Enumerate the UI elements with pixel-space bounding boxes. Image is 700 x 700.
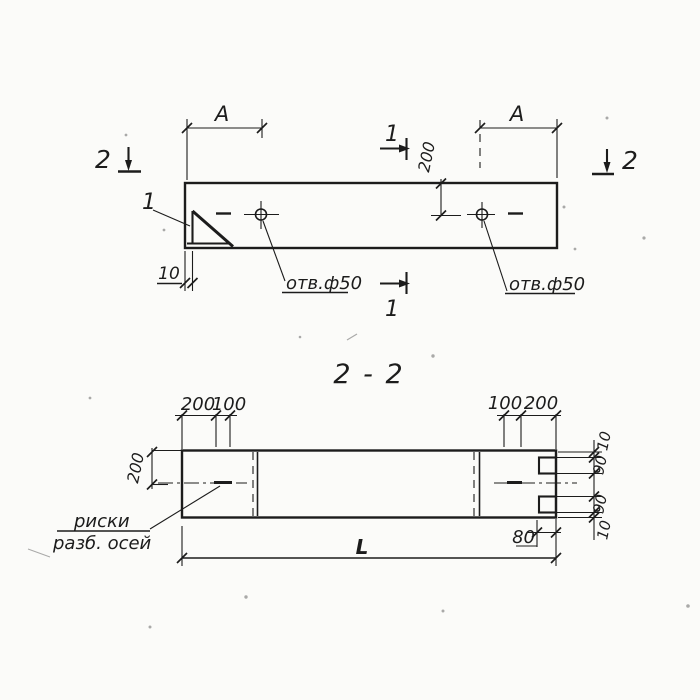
section-2-left-arrow [125,160,132,171]
axes-note-line2: разб. осей [52,533,152,554]
hole-left-leader [263,221,285,281]
dim-100-top-left-label: 100 [212,394,246,415]
notch-bottom [539,497,556,513]
scanned-drawing-page: 1 10 A A [0,0,700,700]
dim-80-label: 80 [512,527,535,548]
corner-triangle-detail [187,211,233,247]
dim-200-top-right-label: 200 [524,393,558,414]
section-2-right-label: 2 [622,146,638,175]
detail-callout-1-label: 1 [142,190,156,215]
joint-lines-right [474,452,480,516]
axes-note-leader [150,486,220,529]
section-2-right-arrow [604,162,611,173]
dim-200-section-label: 200 [123,451,148,485]
section-1-top-arrow [399,145,410,153]
plan-view: 1 10 A A [95,102,638,322]
dim-200-top-left-label: 200 [181,394,215,415]
dim-200-plan-label: 200 [414,140,439,174]
section-mark-1-top: 1 [380,122,410,160]
joint-lines-left [253,452,258,516]
section-title: 2 - 2 [333,359,404,390]
notch-top [539,458,556,474]
dim-a-right: A [475,102,562,178]
dim-10-label: 10 [158,264,180,284]
hole-right [467,202,523,228]
center-axis-left [158,483,247,484]
section-1-bottom-label: 1 [385,297,399,322]
hole-label-right-text: отв.ф50 [509,274,585,295]
dim-length-l: L [177,519,561,566]
section-1-bottom-arrow [399,280,410,288]
axes-note: риски разб. осей [52,486,220,554]
dim-right-10-bottom-label: 10 [593,519,615,541]
plan-beam-outline [185,183,557,248]
dim-100-top-right-label: 100 [488,393,522,414]
hole-left [216,201,279,229]
dim-a-right-label: A [508,102,524,126]
section-mark-1-bottom: 1 [380,272,410,322]
section-mark-2-right: 2 [592,146,638,175]
dims-top-right: 100 200 [488,393,561,449]
dim-right-90-bottom-label: 90 [589,493,611,515]
center-axis-right [494,483,577,484]
hole-label-left: отв.ф50 [263,221,362,294]
section-view: 2 - 2 200 100 [52,359,615,566]
detail-callout-1: 1 [142,190,190,226]
hole-right-leader [484,221,507,291]
dim-200-plan: 200 [414,140,461,221]
dim-right-90-top-label: 90 [589,454,611,476]
dim-a-left-label: A [213,102,229,126]
section-2-left-label: 2 [95,145,111,174]
dim-l-label: L [356,535,369,559]
dim-right-10-top-label: 10 [593,430,615,452]
dims-top-left: 200 100 [175,394,246,449]
dims-right-chain: 10 90 90 10 [557,430,615,541]
axes-note-line1: риски [73,511,130,532]
dim-80: 80 [512,520,561,548]
section-mark-2-left: 2 [95,145,141,174]
hole-label-right: отв.ф50 [484,221,585,295]
dim-a-left: A [182,102,267,180]
dim-10: 10 [157,251,198,291]
hole-label-left-text: отв.ф50 [286,273,362,294]
drawing-canvas: 1 10 A A [0,0,700,700]
section-beam-outline [182,451,556,518]
section-1-top-label: 1 [385,122,399,147]
